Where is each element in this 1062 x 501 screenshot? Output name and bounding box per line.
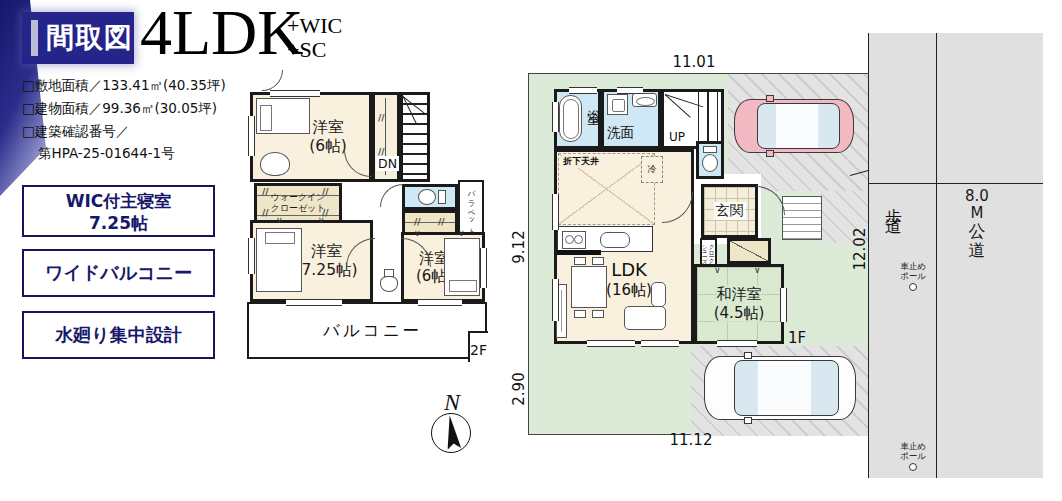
- plan-suffix-wic: +WIC: [287, 13, 342, 39]
- stairs-up-label: UP: [667, 130, 687, 144]
- pole-label: ポール: [889, 271, 937, 281]
- site-plan: 浴室 洗面 UP 玄関 シューズ クローク: [528, 73, 868, 435]
- window: [617, 87, 643, 94]
- room-label: 洋室: [313, 118, 344, 137]
- permit-label-line: □建築確認番号／: [22, 123, 129, 141]
- chair-icon: [574, 257, 586, 265]
- car-cabin: [734, 360, 839, 416]
- room-genkan: 玄関: [701, 184, 758, 238]
- road-label-part: 公: [969, 222, 986, 241]
- sofa-icon: [624, 306, 666, 330]
- opening-mark: ∨: [276, 216, 283, 225]
- dim-top: 11.01: [672, 53, 716, 71]
- parapet-label: パラペット: [466, 185, 476, 233]
- washroom-label: 洗面: [607, 124, 634, 142]
- window: [248, 116, 255, 156]
- window: [552, 279, 559, 321]
- window: [587, 340, 635, 347]
- closet-pole-mark: //: [438, 218, 445, 227]
- site-area-line: □敷地面積／133.41㎡(40.35坪): [22, 77, 226, 95]
- floor-plan-2f: 洋室 (6帖) // // DN ウォークイン クローゼット // // // …: [246, 88, 504, 372]
- compass-n-label: N: [444, 389, 460, 416]
- car-pink: [734, 99, 854, 153]
- fridge-label: 冷: [648, 163, 657, 176]
- kitchen-wall: [557, 250, 601, 255]
- toilet-bowl-icon: [418, 189, 436, 205]
- pole-dot-icon: [909, 283, 917, 291]
- entrance-porch-steps: [782, 196, 822, 240]
- pole-dot-icon: [909, 463, 917, 471]
- dim-right: 12.02: [851, 225, 869, 273]
- window: [780, 288, 787, 322]
- window: [552, 194, 559, 230]
- window: [569, 87, 597, 94]
- door-arc: [262, 70, 283, 91]
- feature-text: ワイドバルコニー: [24, 251, 213, 295]
- building-area-line: □建物面積／99.36㎡(30.05坪): [22, 100, 217, 118]
- bed-icon: [256, 228, 302, 292]
- window: [418, 299, 462, 306]
- road-label-part: 8.0: [965, 188, 989, 205]
- window: [641, 340, 679, 347]
- toilet-bowl-icon: [702, 154, 718, 172]
- title-badge: 間取図: [22, 12, 134, 64]
- room-label: (4.5帖): [714, 304, 765, 323]
- feature-text: WIC付主寝室: [24, 190, 213, 212]
- plan-suffix-sc: +SC: [287, 37, 326, 63]
- road-divider-line: [936, 33, 937, 478]
- road-label-part: 道: [969, 241, 986, 260]
- room-label: LDK: [611, 259, 647, 281]
- washing-machine-icon: [607, 94, 628, 115]
- balcony: バルコニー: [247, 302, 487, 359]
- fridge-box: 冷: [641, 156, 663, 183]
- feature-text: 7.25帖: [24, 212, 213, 234]
- road-cross-line: [869, 183, 1043, 184]
- dropped-ceiling-label: 折下天井: [562, 155, 600, 168]
- chair-icon: [574, 310, 586, 318]
- title-badge-bar: [31, 20, 38, 56]
- kitchen-counter: [557, 226, 653, 252]
- pole-label: 車止め: [889, 261, 937, 271]
- opening-mark: ∨: [754, 266, 761, 275]
- wic-pole-mark: //: [262, 209, 269, 218]
- room-label: 和洋室: [717, 285, 762, 304]
- car-stop-pole: 車止め ポール: [889, 261, 937, 291]
- balcony-label: バルコニー: [323, 320, 422, 342]
- floor-tag-2f: 2F: [470, 342, 487, 358]
- floor-tag-1f: 1F: [788, 329, 806, 347]
- opening-mark: ∨: [714, 266, 721, 275]
- closet-1f: [727, 238, 771, 264]
- road-area: 歩道 8.0 M 公 道 車止め ポール 車止め ポール: [868, 33, 1043, 478]
- pole-label: 車止め: [889, 441, 937, 451]
- road-label-part: M: [971, 205, 984, 222]
- car-white: [704, 356, 856, 420]
- room-label: 洋室: [311, 242, 342, 261]
- permit-number-line: 第HPA-25-01644-1号: [38, 145, 175, 163]
- closet-pole-mark: //: [414, 218, 421, 227]
- dim-left-upper: 9.12: [510, 224, 528, 270]
- page-title: 間取図: [46, 19, 133, 57]
- sidewalk-label: 歩道: [883, 195, 906, 213]
- car-cabin: [757, 103, 840, 150]
- stairs-dn-label: DN: [376, 156, 399, 171]
- toilet-tank-icon: [703, 146, 717, 153]
- opening-mark: ∨: [414, 229, 421, 238]
- genkan-label: 玄関: [714, 202, 746, 220]
- vase-neck-icon: [384, 269, 394, 277]
- vase-icon: [380, 276, 398, 292]
- window: [717, 340, 757, 347]
- bath-label: 浴室: [584, 99, 602, 103]
- kitchen-sink-icon: [600, 232, 630, 248]
- sink-icon: [632, 93, 657, 107]
- car-stop-pole: 車止め ポール: [889, 441, 937, 471]
- road-label: 8.0 M 公 道: [957, 188, 997, 260]
- armchair-icon: [260, 152, 290, 176]
- closet-pole-mark: //: [378, 114, 385, 123]
- feature-box-plumbing: 水廻り集中設計: [22, 311, 215, 359]
- room-washitsu: 和洋室 (4.5帖): [694, 264, 784, 344]
- plan-type: 4LDK: [140, 0, 304, 66]
- window: [248, 238, 255, 274]
- room-label: クローゼット: [270, 203, 325, 214]
- feature-box-wide-balcony: ワイドバルコニー: [22, 249, 215, 297]
- toilet-tank-icon: [438, 190, 446, 204]
- feature-box-master-bedroom: WIC付主寝室 7.25帖: [22, 185, 215, 237]
- opening-mark: ∨: [318, 216, 325, 225]
- bed-icon: [444, 238, 480, 296]
- bed-icon: [256, 98, 310, 134]
- dim-left-lower: 2.90: [510, 367, 528, 411]
- floor-plan-flyer: 間取図 4LDK +WIC +SC □敷地面積／133.41㎡(40.35坪) …: [0, 0, 1062, 501]
- room-label: (16帖): [606, 281, 652, 300]
- ldk-label: LDK (16帖): [591, 259, 667, 300]
- bathtub-icon: [559, 95, 582, 142]
- window: [552, 102, 559, 132]
- window: [480, 248, 487, 288]
- window: [270, 90, 320, 97]
- dim-bottom: 11.12: [668, 431, 714, 449]
- window: [286, 299, 342, 306]
- room-label: (6帖): [309, 137, 346, 156]
- wic-pole-mark: //: [322, 188, 329, 197]
- pole-label: ポール: [889, 451, 937, 461]
- room-label: ウォークイン: [270, 192, 325, 203]
- feature-text: 水廻り集中設計: [24, 313, 213, 357]
- closet-pole-mark: //: [378, 148, 385, 157]
- opening-mark: ∨: [458, 229, 465, 238]
- chair-icon: [592, 310, 604, 318]
- wic-pole-mark: //: [262, 188, 269, 197]
